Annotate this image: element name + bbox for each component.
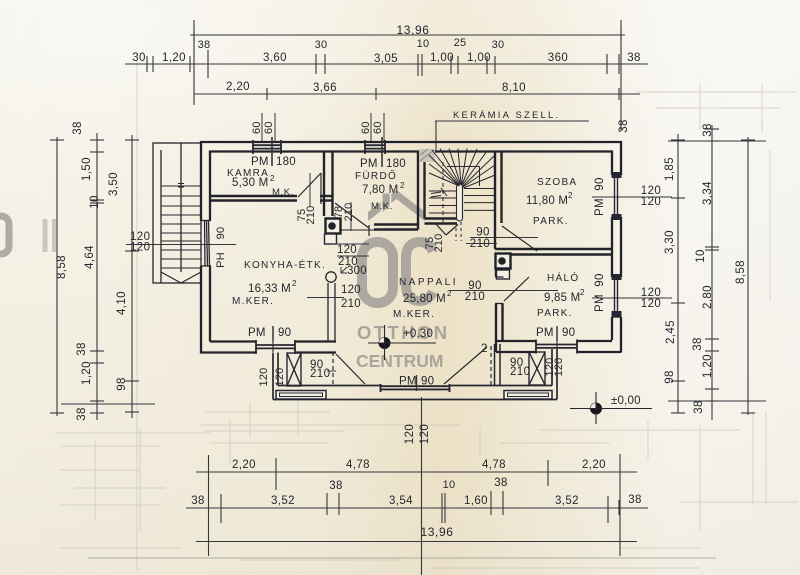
svg-text:38: 38 xyxy=(618,119,630,133)
svg-text:120: 120 xyxy=(641,196,661,208)
svg-text:25: 25 xyxy=(454,37,467,49)
svg-text:60: 60 xyxy=(251,121,263,134)
svg-text:120: 120 xyxy=(337,244,357,256)
svg-text:M.K.: M.K. xyxy=(272,187,294,198)
svg-text:90: 90 xyxy=(562,327,575,339)
svg-text:120: 120 xyxy=(130,242,150,254)
svg-text:1,85: 1,85 xyxy=(664,157,676,181)
svg-text:1,60: 1,60 xyxy=(464,495,488,507)
svg-text:PH: PH xyxy=(215,252,227,268)
svg-text:2,45: 2,45 xyxy=(665,320,677,344)
svg-text:3,60: 3,60 xyxy=(263,52,287,64)
svg-text:PARK.: PARK. xyxy=(533,216,569,227)
svg-text:210: 210 xyxy=(310,368,330,380)
svg-text:2,20: 2,20 xyxy=(226,81,250,93)
svg-text:+0,30: +0,30 xyxy=(403,328,433,340)
svg-text:90: 90 xyxy=(215,227,227,240)
svg-text:PM: PM xyxy=(399,376,417,388)
svg-text:2: 2 xyxy=(292,279,297,288)
svg-text:SZOBA: SZOBA xyxy=(537,177,577,188)
svg-text:11,80 M: 11,80 M xyxy=(526,195,568,207)
svg-text:300: 300 xyxy=(347,265,367,277)
svg-text:PM: PM xyxy=(536,327,554,339)
svg-text:60: 60 xyxy=(372,121,384,134)
svg-text:2,20: 2,20 xyxy=(582,459,606,471)
svg-text:KERÁMIA SZELL.: KERÁMIA SZELL. xyxy=(453,110,560,121)
svg-text:2,80: 2,80 xyxy=(702,285,714,309)
svg-text:210: 210 xyxy=(465,291,485,303)
svg-text:120: 120 xyxy=(641,298,661,310)
svg-text:8,58: 8,58 xyxy=(56,255,68,279)
svg-text:3,34: 3,34 xyxy=(702,181,714,205)
svg-text:1,20: 1,20 xyxy=(81,361,93,385)
svg-text:30: 30 xyxy=(492,39,505,51)
svg-text:3,66: 3,66 xyxy=(313,82,337,94)
svg-text:120: 120 xyxy=(341,284,361,296)
svg-text:2: 2 xyxy=(481,343,488,355)
svg-text:3,54: 3,54 xyxy=(389,495,413,507)
svg-text:25,80 M: 25,80 M xyxy=(403,293,446,305)
svg-text:38: 38 xyxy=(627,52,641,64)
svg-text:CENTRUM: CENTRUM xyxy=(356,351,444,371)
svg-text:HÁLÓ: HÁLÓ xyxy=(547,271,579,284)
svg-text:1,50: 1,50 xyxy=(81,157,93,181)
svg-text:7,80 M: 7,80 M xyxy=(362,184,398,196)
svg-text:8,10: 8,10 xyxy=(502,82,526,94)
svg-text:PM: PM xyxy=(251,156,269,168)
svg-text:±0,00: ±0,00 xyxy=(611,395,641,407)
svg-text:90: 90 xyxy=(421,376,434,388)
svg-text:FÜRDŐ: FÜRDŐ xyxy=(355,168,397,182)
svg-text:5,30 M: 5,30 M xyxy=(232,177,268,189)
svg-text:60: 60 xyxy=(263,121,275,134)
svg-text:38: 38 xyxy=(72,121,84,135)
svg-text:38: 38 xyxy=(692,337,704,351)
svg-text:M.KER.: M.KER. xyxy=(393,309,435,320)
svg-text:PM: PM xyxy=(360,158,378,170)
svg-text:3,52: 3,52 xyxy=(271,495,295,507)
svg-text:2: 2 xyxy=(400,181,405,190)
svg-text:210: 210 xyxy=(341,298,361,310)
svg-text:4,78: 4,78 xyxy=(346,459,370,471)
svg-text:2: 2 xyxy=(270,174,275,183)
svg-text:KONYHA-ÉTK.: KONYHA-ÉTK. xyxy=(244,258,326,271)
svg-text:13,96: 13,96 xyxy=(396,23,429,37)
svg-text:8,58: 8,58 xyxy=(735,260,747,284)
svg-text:38: 38 xyxy=(198,39,211,51)
svg-text:38: 38 xyxy=(494,477,508,489)
svg-text:2: 2 xyxy=(568,191,573,200)
svg-text:PARK.: PARK. xyxy=(537,308,573,319)
svg-text:1,20: 1,20 xyxy=(702,354,714,378)
svg-text:210: 210 xyxy=(433,234,445,253)
svg-text:90: 90 xyxy=(278,327,291,339)
svg-text:PM: PM xyxy=(594,294,606,312)
svg-text:30: 30 xyxy=(315,39,328,51)
svg-text:16,33 M: 16,33 M xyxy=(248,283,291,295)
svg-text:60: 60 xyxy=(360,121,372,134)
svg-text:1,00: 1,00 xyxy=(467,52,491,64)
svg-text:38: 38 xyxy=(628,494,642,506)
svg-text:90: 90 xyxy=(594,273,606,287)
svg-text:3,05: 3,05 xyxy=(374,53,398,65)
svg-text:M.K.: M.K. xyxy=(371,201,393,212)
svg-text:10: 10 xyxy=(443,479,456,491)
svg-text:38: 38 xyxy=(702,123,714,137)
svg-text:4,78: 4,78 xyxy=(482,459,506,471)
svg-text:1,00: 1,00 xyxy=(430,52,454,64)
svg-text:90: 90 xyxy=(476,227,490,239)
svg-text:PM: PM xyxy=(248,327,266,339)
svg-text:120: 120 xyxy=(553,358,565,377)
svg-text:210: 210 xyxy=(510,366,530,378)
svg-text:9,85 M: 9,85 M xyxy=(544,292,580,304)
svg-text:38: 38 xyxy=(191,495,205,507)
svg-text:M.KER.: M.KER. xyxy=(232,296,274,307)
svg-text:180: 180 xyxy=(386,158,406,170)
svg-text:10: 10 xyxy=(89,195,101,209)
svg-text:4,64: 4,64 xyxy=(84,245,96,269)
svg-text:NAPPALI: NAPPALI xyxy=(399,277,458,288)
svg-text:98: 98 xyxy=(664,370,676,384)
svg-text:98: 98 xyxy=(116,377,128,391)
svg-text:13,96: 13,96 xyxy=(420,525,453,539)
svg-text:2: 2 xyxy=(580,288,585,297)
svg-text:38: 38 xyxy=(693,400,705,414)
svg-text:3,52: 3,52 xyxy=(555,495,579,507)
svg-text:30: 30 xyxy=(132,52,146,64)
svg-text:10: 10 xyxy=(695,249,707,263)
svg-text:210: 210 xyxy=(305,206,317,225)
svg-text:360: 360 xyxy=(548,52,568,64)
svg-text:38: 38 xyxy=(76,407,88,421)
svg-text:2,20: 2,20 xyxy=(232,459,256,471)
svg-text:PM: PM xyxy=(594,198,606,216)
svg-text:90: 90 xyxy=(594,177,606,191)
svg-text:1,20: 1,20 xyxy=(162,52,186,64)
svg-text:38: 38 xyxy=(329,480,343,492)
svg-text:120: 120 xyxy=(274,368,286,387)
svg-text:3,50: 3,50 xyxy=(108,172,120,196)
svg-text:120: 120 xyxy=(258,368,270,387)
svg-text:180: 180 xyxy=(276,156,296,168)
svg-text:10: 10 xyxy=(417,38,430,50)
svg-text:3,30: 3,30 xyxy=(664,230,676,254)
svg-text:210: 210 xyxy=(343,203,355,222)
svg-text:120: 120 xyxy=(404,424,416,444)
svg-text:38: 38 xyxy=(76,342,88,356)
svg-text:4,10: 4,10 xyxy=(116,291,128,315)
svg-text:120: 120 xyxy=(419,424,431,444)
